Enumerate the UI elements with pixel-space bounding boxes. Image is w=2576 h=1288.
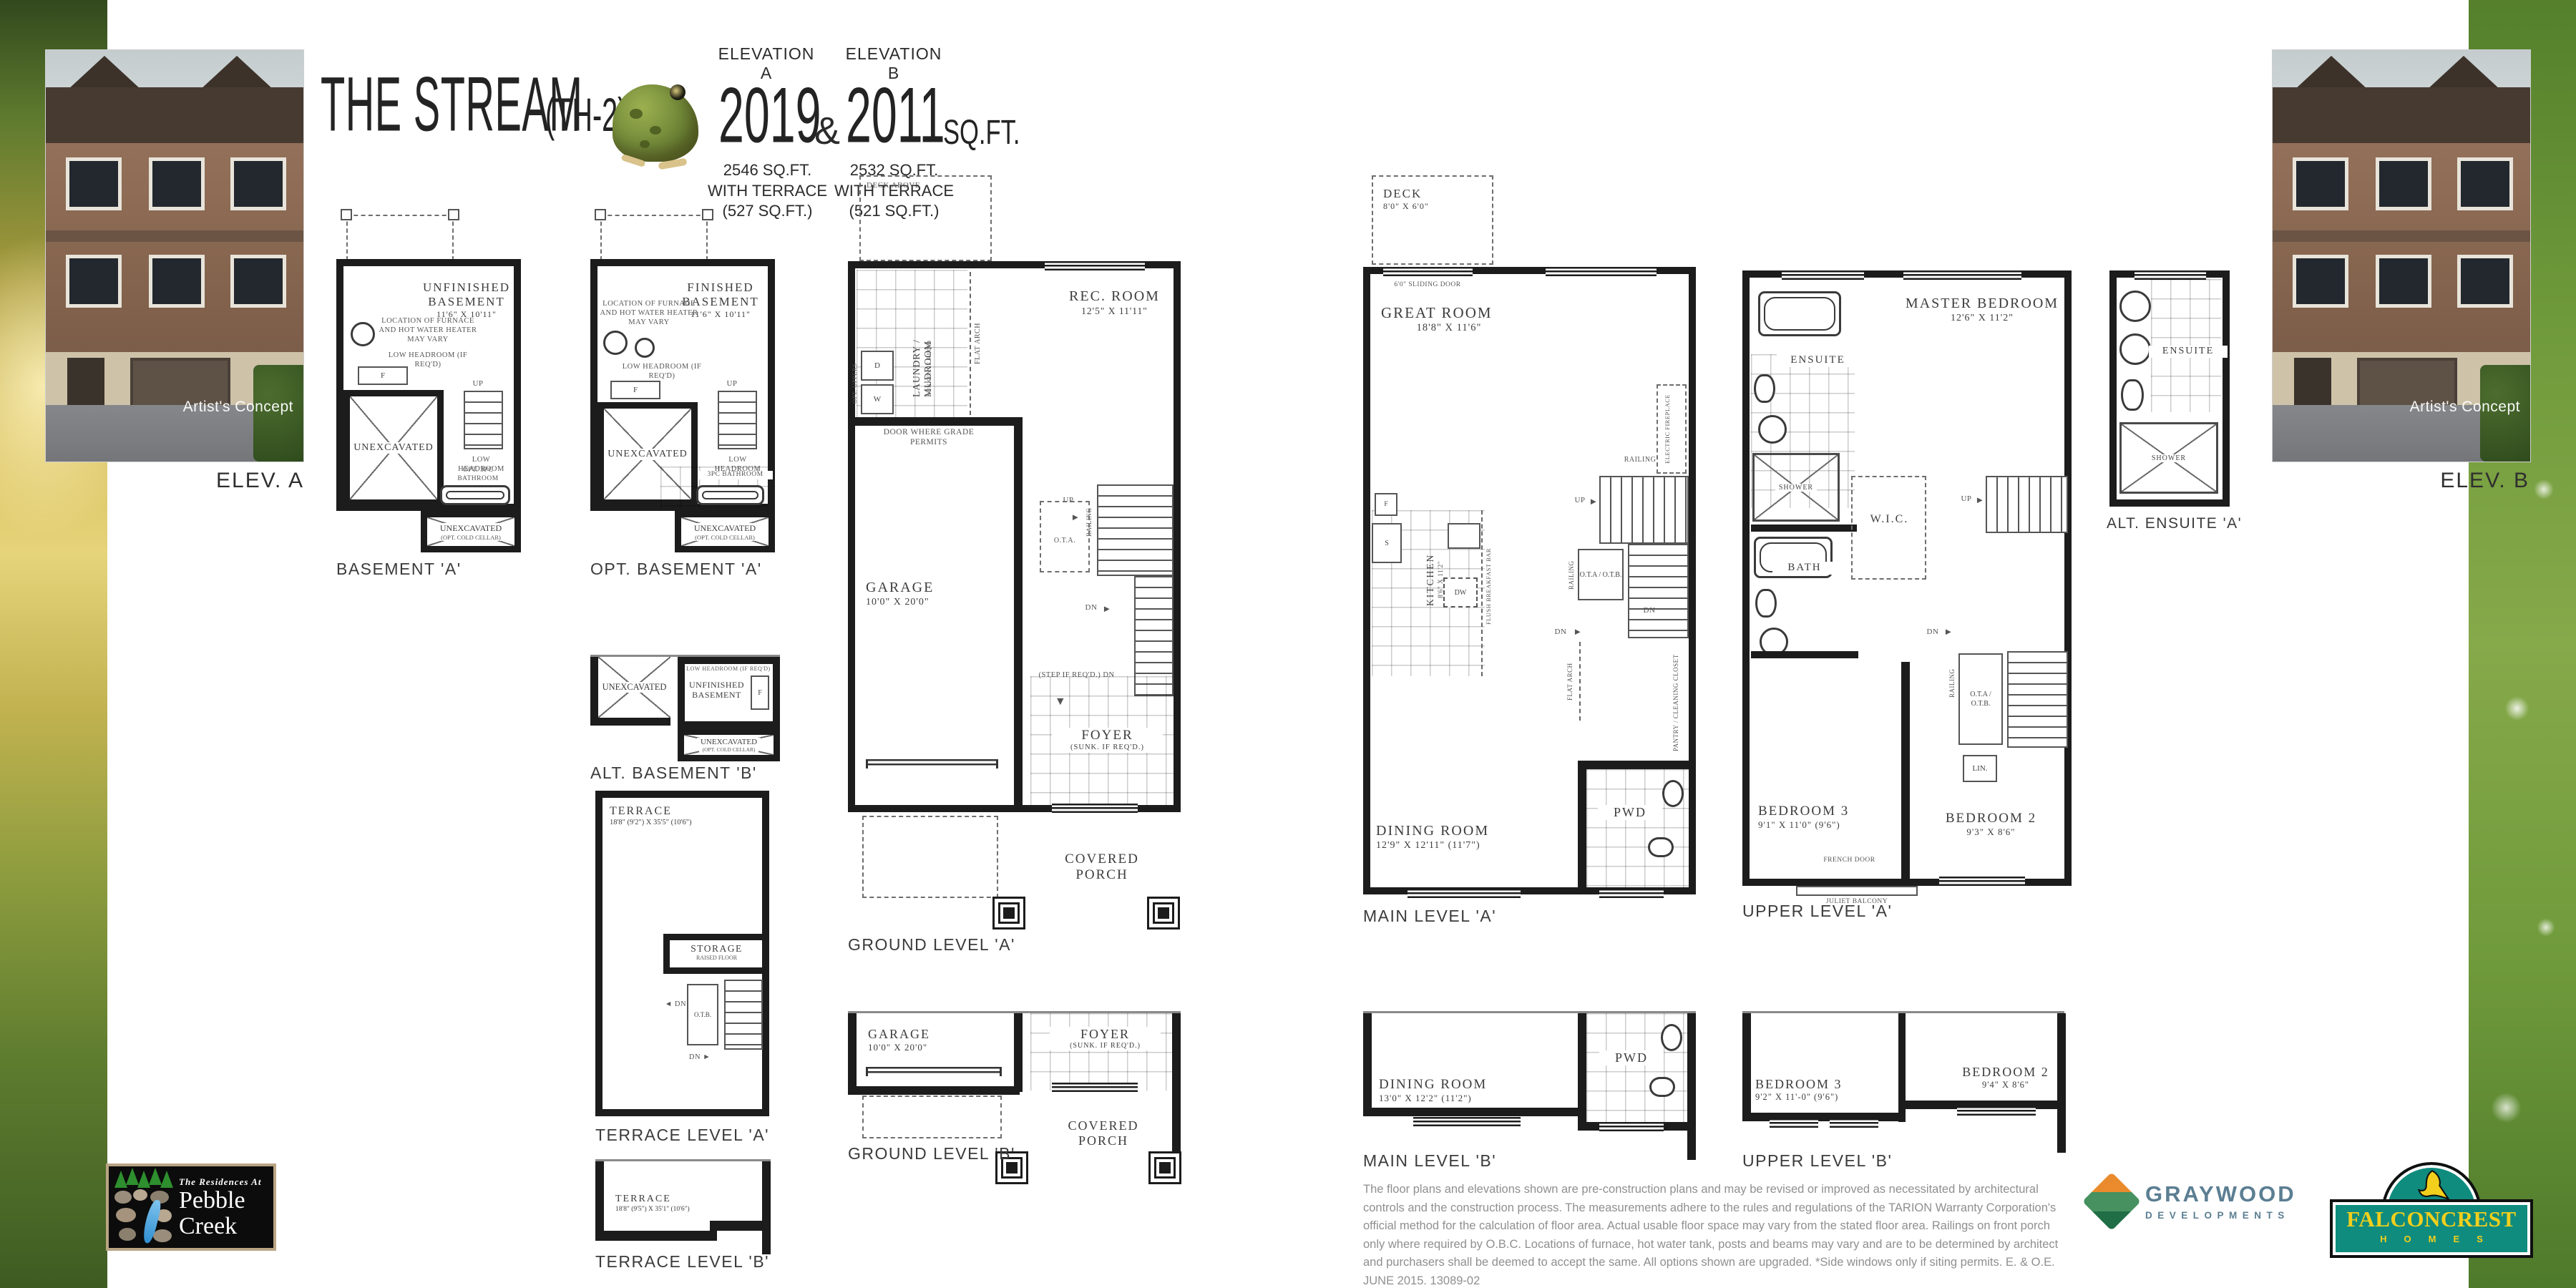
window [66,255,122,308]
falconcrest-name: FALCONCREST [2330,1206,2533,1232]
porch-outline [600,215,708,260]
wall [848,1013,857,1086]
window [66,157,122,210]
room-dims: 10'0" X 20'0" [866,597,959,609]
window [1599,1122,1664,1131]
pebble-icon [116,1208,136,1222]
window [1546,267,1657,276]
graywood-sub: DEVELOPMENTS [2145,1210,2296,1221]
room-sub: (SUNK. IF REQ'D.) [1053,1042,1157,1050]
window [1782,270,1864,280]
right-arrow-icon: ► [703,1053,711,1061]
porch-post-core [1159,1162,1171,1174]
sink [1662,780,1684,807]
dryer-box: D [861,351,894,381]
pebble-name-line2: Creek [179,1215,237,1238]
room-label-foyer: FOYER (SUNK. IF REQ'D.) [1050,1027,1161,1050]
ota-otb-box: O.T.A / O.T.B. [1578,549,1624,600]
plan-label-basement-a: BASEMENT 'A' [336,560,462,579]
low-headroom-note: LOW HEADROOM (IF REQ'D) [686,665,771,673]
pebble-icon [119,1228,136,1241]
door-grade-note: DOOR WHERE GRADE PERMITS [882,427,975,448]
wall [595,1231,717,1241]
furnace-note: LOCATION OF FURNACE AND HOT WATER HEATER… [599,299,699,327]
porch-post-mid [998,902,1020,924]
front-door [1052,1083,1138,1092]
railing-label: RAILING [1948,658,1956,708]
graywood-name: GRAYWOOD [2145,1183,2296,1205]
juliet-balcony [1796,886,1918,896]
plan-alt-basement-b: UNEXCAVATED LOW HEADROOM (IF REQ'D) UNFI… [590,655,780,780]
up-label: UP [464,379,492,389]
room-name: MASTER BEDROOM [1906,296,2059,311]
plan-main-a: DECK 8'0" X 6'0" 6'0" SLIDING DOOR GREAT… [1363,175,1696,927]
porch-post [1147,897,1180,930]
french-door-label: FRENCH DOOR [1808,857,1890,865]
ensuite-tub [1758,291,1841,336]
dn-label: ◄ DN [661,1000,690,1009]
window [2376,255,2431,308]
pwd-label: PWD [1598,805,1662,820]
room-dims: 13'0" X 12'2" (11'2") [1379,1093,1511,1103]
cold-cellar-label: (OPT. COLD CELLAR) [437,534,504,541]
title-text: THE STREAM [321,60,583,149]
room-label-foyer: FOYER (SUNK. IF REQ'D.) [1052,728,1163,753]
furnace-box: F [751,675,769,710]
room-label-great-room: GREAT ROOM 18'8" X 11'6" [1381,304,1517,334]
window [149,157,205,210]
left-arrow-icon: ◄ [665,1000,673,1008]
dn-label: DN ► [680,1053,720,1062]
wall [1014,1013,1023,1092]
driveway-outline [862,816,998,898]
room-name: GARAGE [866,580,934,595]
flat-arch-line [1579,642,1581,721]
post-marker [341,209,352,220]
furnace-note: LOCATION OF FURNACE AND HOT WATER HEATER… [378,316,478,344]
facade-band [46,230,303,242]
room-name: BEDROOM 2 [1962,1065,2049,1079]
room-name: BEDROOM 2 [1946,811,2036,826]
plan-label-main-b: MAIN LEVEL 'B' [1363,1151,1496,1171]
basement-fragment: LOW HEADROOM (IF REQ'D) UNFINISHED BASEM… [678,657,780,728]
photo-caption: Artist's Concept [183,399,293,416]
plan-terrace-a: TERRACE 18'8" (9'2") X 35'5" (10'6") STO… [595,791,771,1145]
unexcavated-label: UNEXCAVATED [697,738,761,746]
plan-label-upper-a: UPPER LEVEL 'A' [1742,902,1892,921]
cold-cellar-area: UNEXCAVATED (OPT. COLD CELLAR) [421,511,521,552]
window [230,157,286,210]
sqft-suffix-text: SQ.FT. [943,113,1020,152]
stairs [1628,544,1689,638]
room-name: DINING ROOM [1376,823,1489,839]
flat-arch-line [970,272,971,415]
window [1939,877,2025,886]
brochure-page: Artist's Concept ELEV. A Artist's Concep… [0,0,2576,1288]
roof-gable [67,56,142,90]
plan-terrace-b: TERRACE 18'8" (9'5") X 35'1" (10'6") TER… [595,1159,771,1274]
toilet [1754,374,1775,403]
porch-post [1148,1151,1181,1184]
cold-cellar-area: UNEXCAVATED (OPT. COLD CELLAR) [678,728,780,761]
wall [1578,1013,1586,1128]
up-arrow: ► [1586,496,1601,507]
unexcavated-label: UNEXCAVATED [350,442,437,454]
furnace-box: F [610,381,660,399]
room-dims: 9'2" X 11'-0" (9'6") [1755,1092,1884,1103]
plan-label-terrace-a: TERRACE LEVEL 'A' [595,1126,769,1145]
plan-label-ground-b: GROUND LEVEL 'B' [848,1144,1015,1163]
wic-label: W.I.C. [1855,513,1923,527]
disclaimer-text: The floor plans and elevations shown are… [1363,1181,2064,1288]
wall [1751,651,1858,658]
stove-box: S [1372,523,1402,563]
porch-post-core [1006,1162,1018,1174]
ampersand: & [814,109,840,153]
window [1770,1118,1818,1128]
room-name: REC. ROOM [1069,288,1160,304]
front-door [1052,804,1138,813]
wall [1578,761,1696,769]
post-marker [702,209,713,220]
linen-closet: LIN. [1963,755,1997,782]
pantry-label: PANTRY / CLEANING CLOSET [1672,644,1680,762]
plan-label-ground-a: GROUND LEVEL 'A' [848,935,1015,955]
unexcavated-area: UNEXCAVATED [343,390,444,506]
elev-b-label: ELEV. B [2390,469,2529,493]
room-label-terrace: TERRACE 18'8" (9'2") X 35'5" (10'6") [610,805,696,827]
dishwasher-box: DW [1443,577,1478,608]
toilet [1755,589,1777,618]
room-label-unfinished: UNFINISHED BASEMENT [686,680,747,700]
shower-area: SHOWER [1752,453,1840,522]
covered-porch-label: COVERED PORCH [1048,852,1156,884]
pebble-icon [153,1229,172,1242]
room-label-bedroom2: BEDROOM 2 9'4" X 8'6" [1948,1065,2063,1091]
wall [1751,525,1857,532]
stairs [1986,476,2068,533]
wall [1742,1113,1906,1121]
terrace-a-note: 2546 SQ.FT. WITH TERRACE (527 SQ.FT.) [698,160,837,222]
laundry-sub-label: SUNKEN IF REQ'D [925,329,933,408]
cut-line [595,1159,771,1161]
shower-label: SHOWER [2148,454,2190,462]
stairs [1097,484,1174,576]
breakfast-bar-label: FLUSH BREAKFAST BAR [1485,533,1493,640]
room-dims: 9'1" X 11'0" (9'6") [1758,819,1887,830]
toilet [1649,1077,1675,1097]
sqft-a-number: 2019 [718,72,821,161]
unexcavated-label: UNEXCAVATED [604,449,691,460]
porch-post-mid [1154,1157,1176,1179]
plan-basement-a: UNFINISHED BASEMENT 11'6" X 10'11" LOCAT… [336,215,522,587]
elev-a-label: ELEV. A [165,469,304,493]
plan-upper-a: MASTER BEDROOM 12'6" X 11'2" ENSUITE SHO… [1742,261,2072,919]
sliding-door-label: 6'0" SLIDING DOOR [1381,281,1474,290]
kitchen-sink [1448,523,1480,549]
photo-caption: Artist's Concept [2410,399,2520,416]
entry-door [67,358,104,405]
stairs [1599,476,1689,544]
room-label-terrace: TERRACE 18'8" (9'5") X 35'1" (10'6") [615,1194,708,1214]
cold-cellar-label: (OPT. COLD CELLAR) [699,746,759,753]
room-label-master: MASTER BEDROOM 12'6" X 11'2" [1903,296,2061,324]
plan-label-alt-ensuite: ALT. ENSUITE 'A' [2107,515,2242,532]
dn-label: DN [1548,628,1574,638]
window [1830,1118,1878,1128]
ota-otb-label: O.T.A / O.T.B. [1580,570,1622,580]
dn-text: DN [675,1000,686,1008]
room-name: UNFINISHED BASEMENT [423,280,510,308]
dn-label: DN [1636,606,1662,616]
wall [848,1086,1020,1095]
toilet [1648,837,1674,857]
plan-label-opt-basement-a: OPT. BASEMENT 'A' [590,560,762,579]
furnace-circle [603,331,628,355]
sump-pump [351,322,375,346]
frog-spot [650,126,661,135]
room-name: GREAT ROOM [1381,304,1493,321]
wall [1901,662,1910,886]
cold-cellar-label: (OPT. COLD CELLAR) [691,534,758,541]
roof-gable [200,56,274,90]
frog-photo [608,66,707,179]
pebble-icon [114,1191,132,1204]
window [149,255,205,308]
unexcavated-label: UNEXCAVATED [691,523,759,534]
deck-label: DECK 8'0" X 6'0" [1383,187,1462,211]
sink [2119,333,2151,365]
plan-label-terrace-b: TERRACE LEVEL 'B' [595,1252,769,1272]
furnace-box: F [358,366,408,385]
wall [710,1221,771,1231]
bathtub [440,485,510,505]
railing-label: RAILING [1615,456,1665,465]
toilet [2121,379,2144,411]
roof-gable [2294,56,2368,90]
room-dims: 18'8" X 11'6" [1381,322,1517,334]
room-dims: 18'8" (9'2") X 35'5" (10'6") [610,819,696,827]
wall [1363,1108,1578,1116]
driveway-outline [862,1096,1002,1138]
room-label-dining: DINING ROOM 13'0" X 12'2" (11'2") [1379,1077,1511,1104]
window [2376,157,2431,210]
plan-opt-basement-a: FINISHED BASEMENT 11'6" X 10'11" LOCATIO… [590,215,776,587]
elevation-a-photo: Artist's Concept [46,50,303,462]
otb-box: O.T.B. [687,984,718,1045]
bath-label: BATH [1772,562,1837,575]
fridge-box: F [1375,493,1397,516]
wall [762,1161,771,1254]
up-label: UP [718,379,746,389]
covered-porch-label: COVERED PORCH [1050,1118,1157,1148]
flat-arch-label: FLAT ARCH [1566,648,1574,716]
room-name: FOYER [1080,1027,1130,1041]
graywood-diamond-icon [2082,1172,2141,1231]
wall [1898,1013,1906,1122]
bathtub-inner [446,491,504,499]
storage-room: STORAGE RAISED FLOOR [663,934,763,974]
stairs [464,391,503,449]
roof [46,87,303,145]
wall [1014,417,1023,812]
stairs [2007,651,2068,748]
porch-post-mid [1153,902,1174,924]
window [230,255,286,308]
plan-ground-b: GARAGE 10'0" X 20'0" FOYER (SUNK. IF REQ… [848,1011,1181,1190]
facade-band [2273,230,2530,242]
terrace-a-line1: 2546 SQ.FT. [723,161,812,179]
sump-pump [635,338,655,358]
pebble-name-line1: Pebble [179,1189,245,1212]
window [2293,255,2348,308]
garage-door [866,1067,1002,1076]
room-label-bedroom2: BEDROOM 2 9'3" X 8'6" [1925,811,2057,838]
storage-sub-label: RAISED FLOOR [670,955,763,961]
stairs [718,391,757,449]
ota-otb-label: O.T.A / O.T.B. [1960,690,2001,708]
terrace-a-line2: WITH TERRACE [708,182,827,200]
shower-area: SHOWER [2119,422,2218,494]
pwd-label: PWD [1599,1050,1664,1065]
storage-label: STORAGE [670,943,763,955]
frog-body [613,84,698,162]
up-arrow: ► [1973,494,1987,506]
entry-door [2294,358,2331,405]
dn-arrow: ► [1941,626,1956,638]
graywood-logo: GRAYWOOD DEVELOPMENTS [2091,1181,2296,1222]
roof [2273,87,2530,145]
room-name: TERRACE [615,1194,671,1204]
porch-post-core [1003,907,1015,919]
sqft-suffix: SQ.FT. [943,113,1050,152]
room-name: GARAGE [868,1027,930,1041]
ensuite-label: ENSUITE [1777,354,1859,367]
sink [1661,1024,1682,1051]
porch-outline [346,215,454,260]
tub-inner [1764,297,1835,331]
frog-eye [670,84,686,100]
room-label-garage: GARAGE 10'0" X 20'0" [866,580,959,608]
wall [1363,1013,1372,1108]
unexcavated-area: UNEXCAVATED [590,657,670,726]
room-name: DINING ROOM [1379,1077,1487,1092]
cold-cellar-area: UNEXCAVATED (OPT. COLD CELLAR) [675,511,775,552]
pebble-icon [133,1189,147,1201]
wall [1687,1013,1696,1160]
ota-label: O.T.A. [1047,537,1083,546]
sink [1758,415,1787,444]
foyer-tile [1030,1013,1172,1091]
window [1599,889,1664,898]
elevation-b-photo: Artist's Concept [2273,50,2530,462]
deck-above-label: DECK ABOVE [867,181,945,191]
wall [595,1161,604,1240]
frog-spot [630,109,643,119]
room-label-dining: DINING ROOM 12'9" X 12'11" (11'7") [1376,823,1508,852]
pebble-tagline: The Residences At [179,1176,261,1188]
bay-window [1407,889,1521,898]
porch-post-core [1158,907,1169,919]
opt-bath-label: OPT. 3PC BATHROOM [442,467,514,484]
room-label-unfinished-basement: UNFINISHED BASEMENT 11'6" X 10'11" [416,280,517,319]
plan-upper-b: BEDROOM 3 9'2" X 11'-0" (9'6") BEDROOM 2… [1742,1011,2064,1176]
garage-door [866,759,998,769]
room-name: BEDROOM 3 [1755,1077,1843,1091]
room-dims: 8'0" X 6'0" [1383,201,1462,211]
breakfast-bar-line [1481,510,1483,676]
plan-label-main-a: MAIN LEVEL 'A' [1363,907,1496,926]
sqft-b-number: 2011 [846,72,945,161]
frog-spot [640,140,650,148]
flat-arch-label: FLAT ARCH [974,283,983,404]
room-name: DECK [1383,187,1422,200]
opt-uppers-label: OPT. UPPERS [851,353,859,414]
sink [2119,291,2151,322]
washer-box: W [861,384,894,414]
ensuite-label: ENSUITE [2149,346,2228,358]
wall [848,417,1018,426]
room-dims: 12'6" X 11'2" [1903,313,2061,325]
bathtub [696,485,764,505]
window [2457,157,2513,210]
tree-icon [160,1171,173,1188]
bath-label: 3PC BATHROOM [698,471,773,479]
room-label-bedroom3: BEDROOM 3 9'1" X 11'0" (9'6") [1758,804,1887,831]
dn-arrow: ► [1100,603,1114,615]
room-dims: 10'0" X 20'0" [868,1042,961,1053]
room-label-garage: GARAGE 10'0" X 20'0" [868,1027,961,1053]
wic-outline [1851,476,1926,580]
falconcrest-logo: FALCONCREST HOMES [2330,1162,2533,1258]
sliding-door [1383,267,1473,276]
window [2457,255,2513,308]
bay-window [1413,1117,1521,1126]
window [1957,1106,2036,1116]
window [2293,157,2348,210]
shower-label: SHOWER [1775,484,1817,492]
room-dims: 12'9" X 12'11" (11'7") [1376,840,1508,852]
room-sub: (SUNK. IF REQ'D.) [1055,743,1159,752]
dn-text: DN [689,1053,701,1061]
room-dims: 12'5" X 11'11" [1055,306,1174,317]
bathtub-inner [702,491,758,499]
room-label-bedroom3: BEDROOM 3 9'2" X 11'-0" (9'6") [1755,1077,1884,1103]
graywood-text: GRAYWOOD DEVELOPMENTS [2145,1183,2296,1221]
unexcavated-label: UNEXCAVATED [436,523,505,534]
room-dims: 18'8" (9'5") X 35'1" (10'6") [615,1206,708,1214]
plan-main-b: DINING ROOM 13'0" X 12'2" (11'2") PWD MA… [1363,1011,1696,1176]
post-marker [448,209,459,220]
window [1903,270,2021,280]
falconcrest-sub: HOMES [2330,1234,2533,1244]
plan-label-alt-basement-b: ALT. BASEMENT 'B' [590,763,757,783]
plan-label-upper-b: UPPER LEVEL 'B' [1742,1151,1892,1171]
roof-gable [2426,56,2501,90]
plan-alt-ensuite-a: ENSUITE SHOWER ALT. ENSUITE 'A' [2109,270,2233,532]
room-name: BEDROOM 3 [1758,804,1849,819]
room-name: FOYER [1081,728,1133,743]
unexcavated-label: UNEXCAVATED [599,682,670,693]
kitchen-label: KITCHEN [1425,537,1436,623]
room-name: TERRACE [610,805,672,817]
room-dims: 9'3" X 8'6" [1925,826,2057,837]
window [1045,261,1145,270]
porch-post [992,897,1025,930]
stairs [724,980,763,1050]
railing-label-vertical: RAILING [1568,553,1576,597]
low-headroom-note: LOW HEADROOM (IF REQ'D) [619,362,705,381]
